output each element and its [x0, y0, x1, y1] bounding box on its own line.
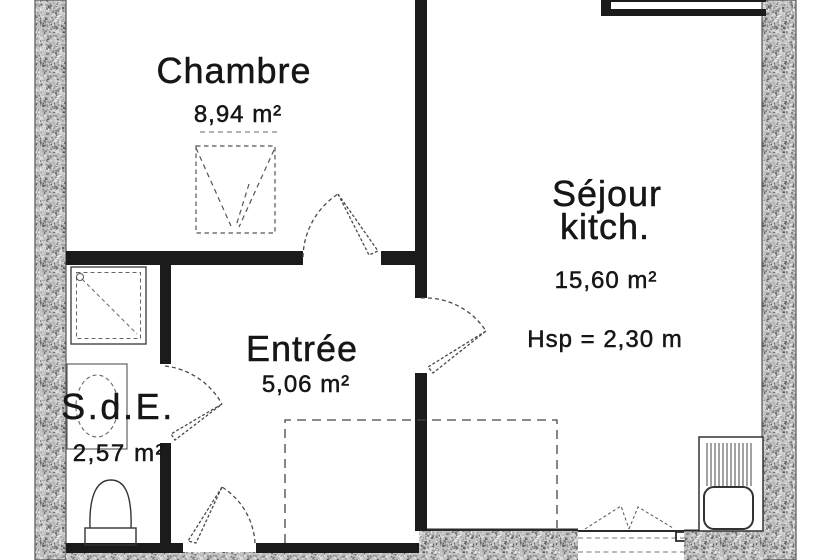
svg-text:kitch.: kitch. [560, 206, 650, 247]
svg-text:15,60 m²: 15,60 m² [555, 267, 658, 294]
svg-text:Hsp = 2,30 m: Hsp = 2,30 m [527, 326, 682, 353]
svg-text:2,57 m²: 2,57 m² [73, 440, 166, 467]
svg-text:Chambre: Chambre [156, 50, 311, 91]
svg-text:Entrée: Entrée [246, 328, 358, 369]
svg-text:5,06 m²: 5,06 m² [262, 371, 350, 398]
svg-text:S.d.E.: S.d.E. [61, 386, 175, 427]
svg-text:8,94 m²: 8,94 m² [194, 101, 282, 128]
